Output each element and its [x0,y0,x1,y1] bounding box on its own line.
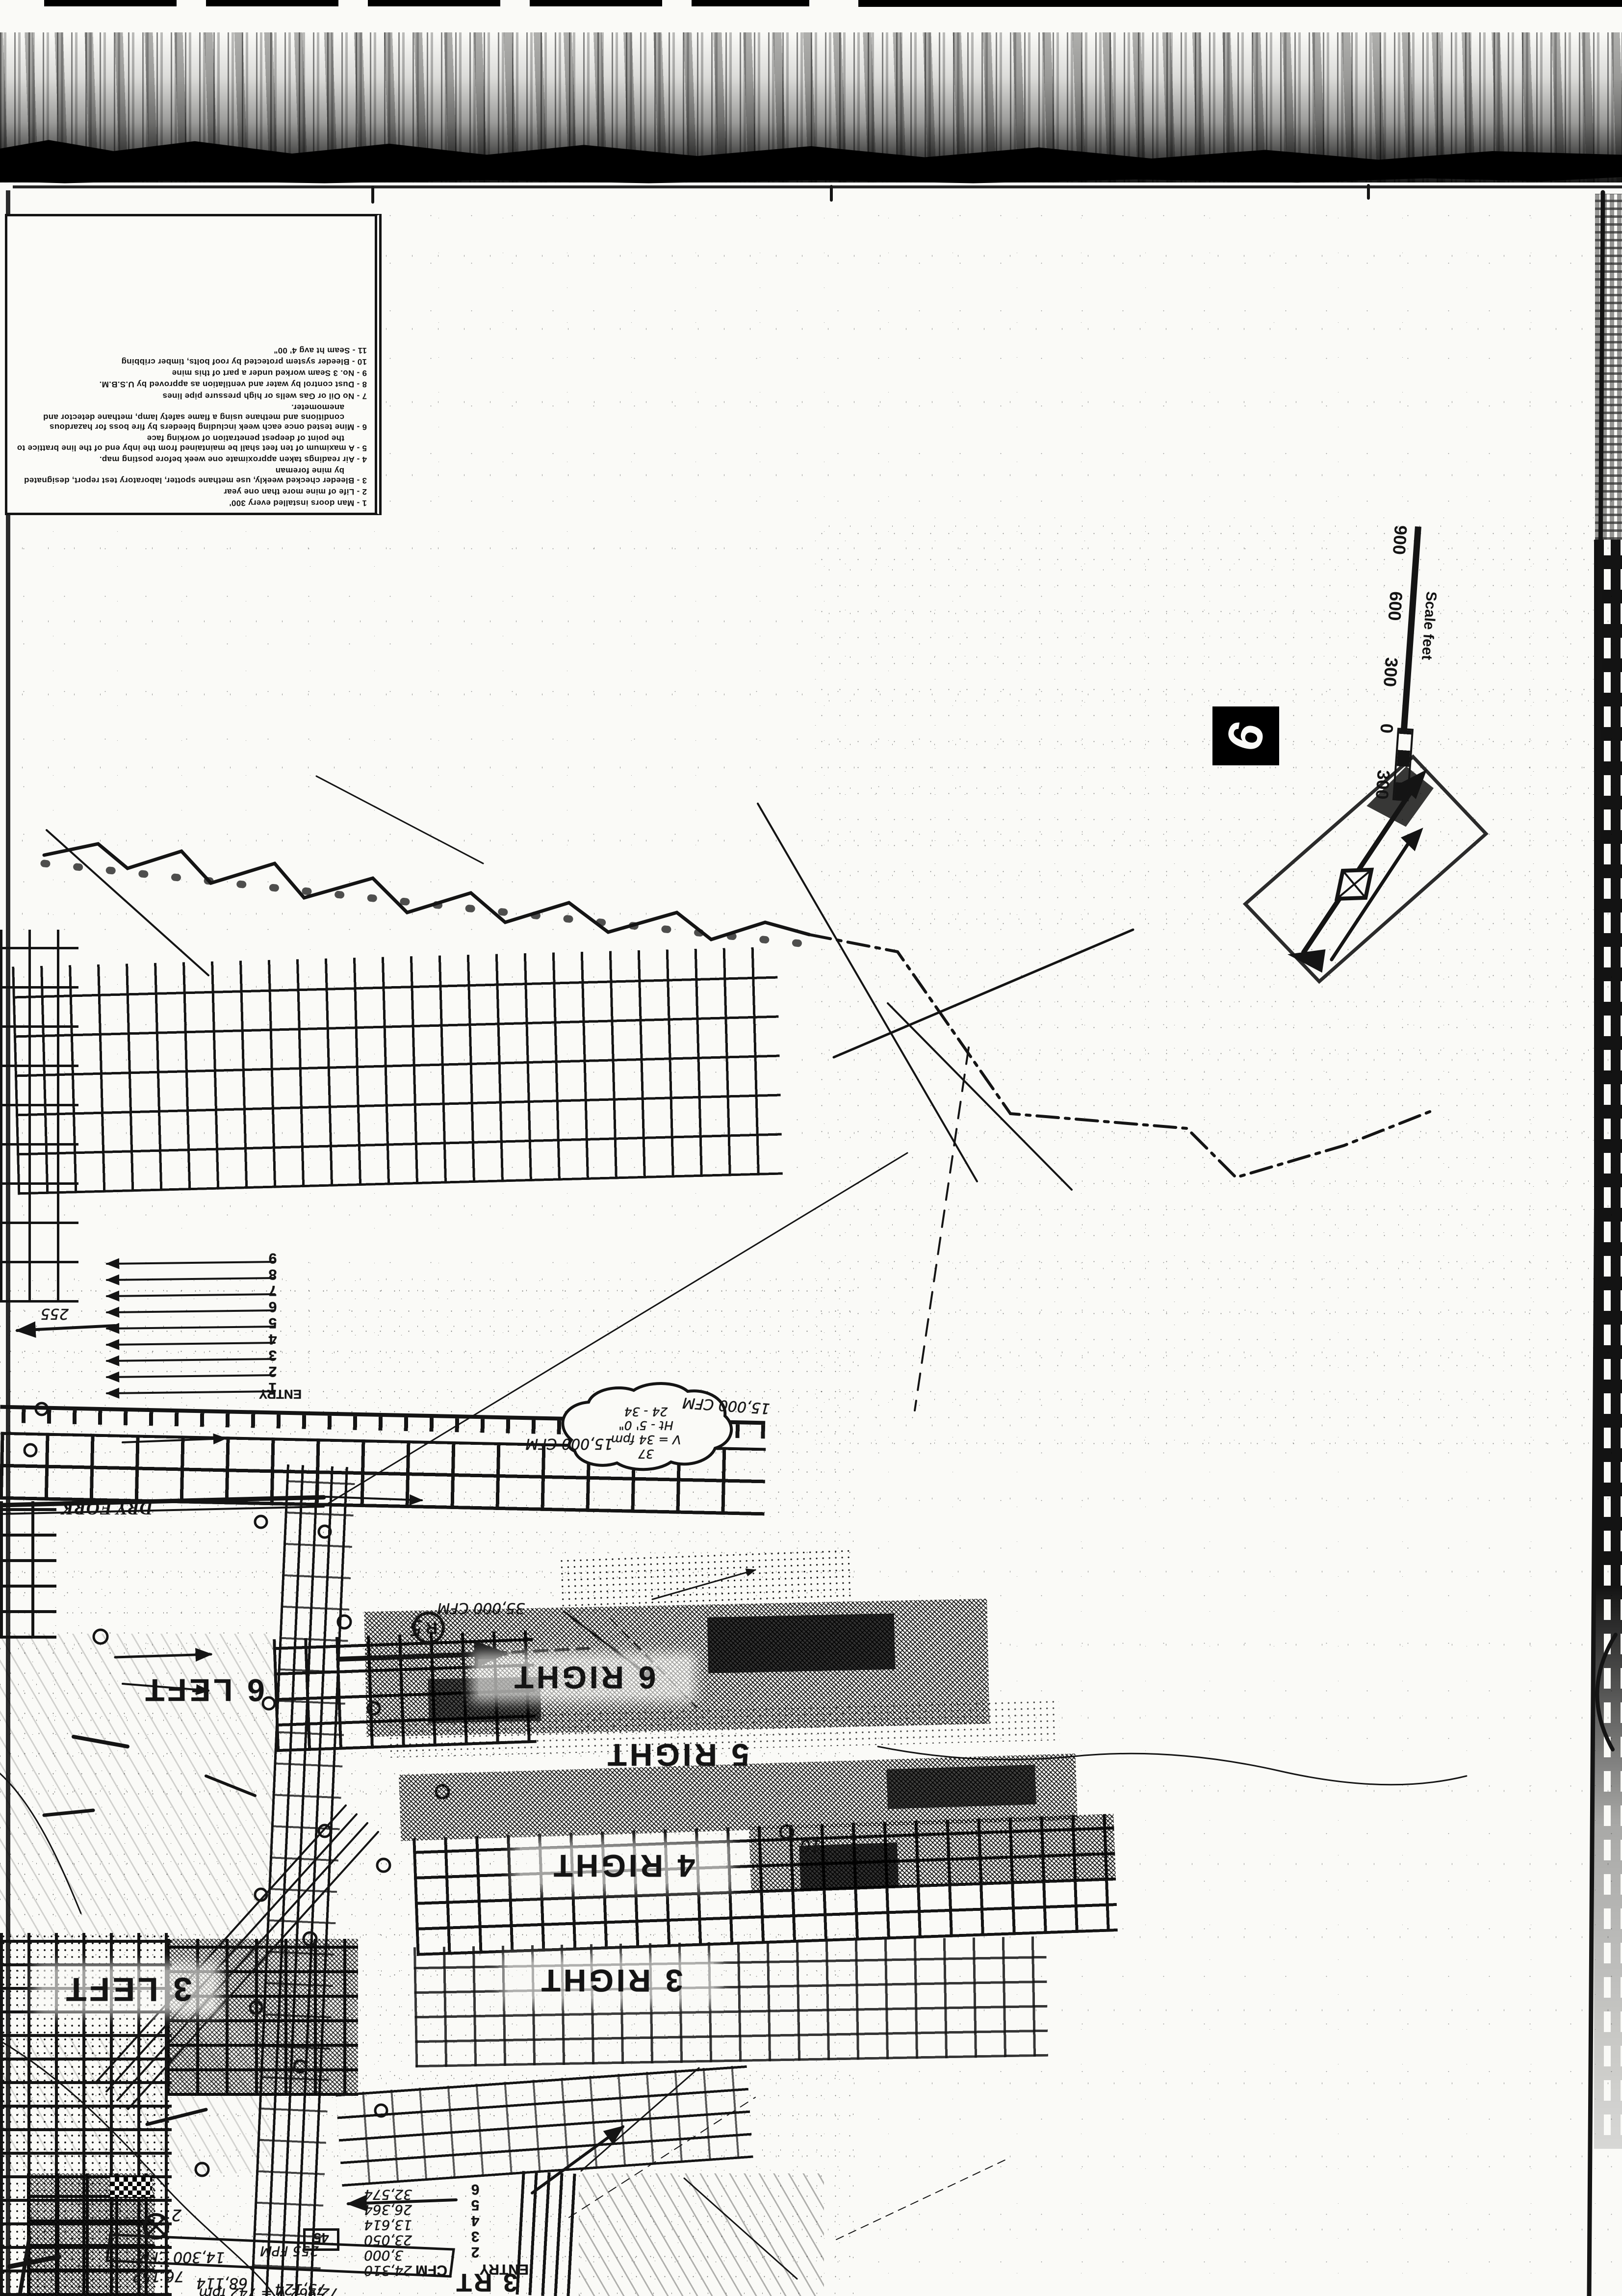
regulator-letter: R [421,1618,438,1637]
scanned-map-page: 1 - Man doors installed every 300' 2 - L… [0,0,1622,2296]
panel-label-3-left: 3 LEFT [42,1970,213,2009]
map-neatline-right [1589,192,1603,2296]
entry-numbers-3rt: 2 3 4 5 6 [467,2181,484,2260]
fan-station-symbol [144,2215,168,2238]
panel-label-6-left: 6 LEFT [120,1672,287,1708]
survey-station-circles [25,1403,793,2176]
stream-line [0,1774,81,1913]
gob-edge-line [878,1747,1467,1785]
boundary-tick-hatches [44,863,809,944]
entry-numbers-column: 1 2 3 4 5 6 7 8 9 [264,1250,282,1396]
station-10-label: 10 [795,1836,821,1855]
airflow-arrow [338,1653,505,1659]
panel-label-6-right: 6 RIGHT [478,1659,689,1696]
north-arrow-ornament [1242,753,1490,986]
annotation-72962: 72,962 V = 742 fpm [128,2285,338,2296]
panel-label-5-right: 5 RIGHT [571,1737,782,1773]
entry-label-3rt: ENTRY [460,2261,529,2277]
regulator-number: 5 [403,1615,423,1640]
map-linework [0,0,1622,2296]
annotation-35000-cfm: 35,000 CFM [402,1599,525,1617]
mine-boundary-line [44,844,809,939]
panel-label-3-right: 3 RIGHT [508,1962,714,1999]
panel-label-4-right: 4 RIGHT [520,1848,726,1884]
annotation-255-fpm: 255 FPM [186,2243,392,2259]
stream-label-dry-fork: DRY FORK [40,1497,153,1519]
entry-column-label: ENTRY [248,1386,302,1402]
projected-boundary-dashdot [809,935,1435,1177]
cfm-readings-column: 24,310 3,000 23,050 13,614 26,364 32,574 [364,2187,452,2278]
entry-airflow-reading: 255 [15,1305,69,1322]
annotation-15000-cfm: 15,000 CFM [495,1435,613,1452]
boxed-survey-value: 45 [303,2228,339,2251]
station-2-label: 2 [165,2206,181,2224]
right-edge-road-curve [1597,1635,1616,1749]
